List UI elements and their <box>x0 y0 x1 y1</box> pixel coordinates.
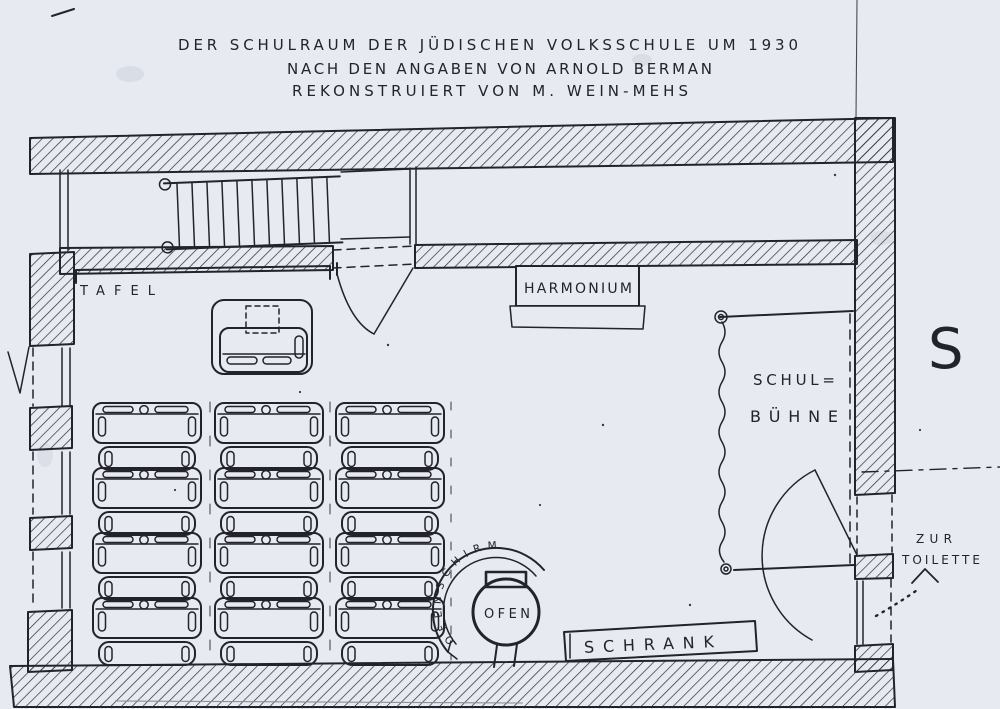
right-window <box>857 579 891 644</box>
toilet-door-opening <box>857 495 892 554</box>
floor-plan-drawing: DER SCHULRAUM DER JÜDISCHEN VOLKSSCHULE … <box>0 0 1000 709</box>
teacher-desk <box>212 300 312 374</box>
window <box>33 348 70 406</box>
staircase <box>159 167 416 253</box>
cabinet: SCHRANK <box>564 621 757 661</box>
classroom-door <box>333 246 415 334</box>
desk-bench-unit <box>215 533 323 600</box>
desk-rows <box>93 402 451 665</box>
toilet-door-swing <box>762 470 857 640</box>
desk-bench-unit <box>93 468 201 535</box>
left-wall-bottom-pier <box>28 610 72 672</box>
right-wall-pier <box>855 554 893 579</box>
corridor-wall-right-segment <box>415 240 857 268</box>
scanned-floor-plan: DER SCHULRAUM DER JÜDISCHEN VOLKSSCHULE … <box>0 0 1000 709</box>
top-wall <box>30 118 893 174</box>
fold-line <box>856 0 857 118</box>
corridor-left-wall <box>60 170 68 250</box>
desk-bench-unit <box>215 403 323 470</box>
title-line-2: NACH DEN ANGABEN VON ARNOLD BERMAN <box>287 60 712 78</box>
left-windows <box>33 348 70 608</box>
desk-bench-unit <box>336 468 444 535</box>
stove-screen-arc-inner <box>444 558 536 644</box>
toilet-arrow-head <box>912 569 938 583</box>
stage-label-line-2: BÜHNE <box>750 407 838 426</box>
school-stage: SCHUL= BÜHNE <box>715 311 854 574</box>
right-wall-upper <box>855 118 895 495</box>
toilet-label-line-1: ZUR <box>916 532 952 546</box>
title-line-1: DER SCHULRAUM DER JÜDISCHEN VOLKSSCHULE … <box>178 35 798 54</box>
desk-bench-unit <box>336 403 444 470</box>
stage-label-line-1: SCHUL= <box>753 371 835 389</box>
toilet-label-line-2: TOILETTE <box>901 553 980 567</box>
desk-bench-unit <box>336 598 444 665</box>
right-wall-lower <box>855 644 893 672</box>
harmonium: HARMONIUM <box>510 266 645 329</box>
desk-bench-unit <box>93 403 201 470</box>
desk-bench-unit <box>215 468 323 535</box>
speckles <box>174 174 921 606</box>
bottom-wall <box>10 659 895 707</box>
walls <box>10 118 895 707</box>
compass-south-label: S <box>928 317 964 382</box>
title-line-3: REKONSTRUIERT VON M. WEIN-MEHS <box>292 82 688 100</box>
desk-bench-unit <box>215 598 323 665</box>
stair-landing <box>341 167 416 244</box>
toilet-arrow-dots <box>876 588 920 616</box>
harmonium-label: HARMONIUM <box>524 281 632 297</box>
title-block: DER SCHULRAUM DER JÜDISCHEN VOLKSSCHULE … <box>178 35 798 100</box>
stove: OFEN OFENSCHIRM <box>432 540 544 667</box>
window <box>33 552 70 608</box>
left-wall-pier <box>30 406 72 450</box>
desk-bench-unit <box>93 598 201 665</box>
margin-mark <box>8 347 29 393</box>
desk-bench-unit <box>93 533 201 600</box>
stage-curtain <box>719 322 725 562</box>
left-wall-pier <box>30 516 72 550</box>
stray-mark <box>52 9 74 16</box>
stove-label: OFEN <box>484 607 530 622</box>
blotch <box>116 66 144 82</box>
blackboard-label: TAFEL <box>79 284 156 299</box>
desk-bench-unit <box>336 533 444 600</box>
